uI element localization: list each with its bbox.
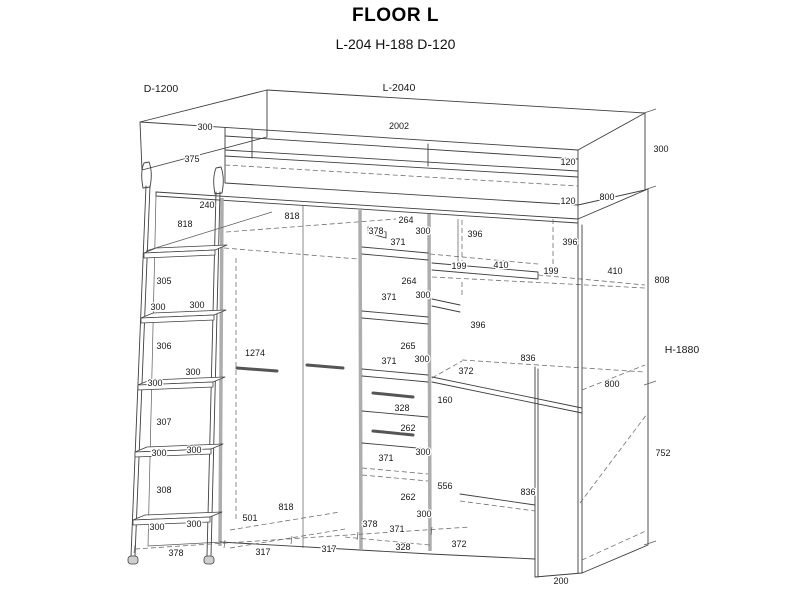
furniture-line-drawing: D-1200L-20403002002300375120800120240818… — [0, 0, 791, 593]
dimension-label: 264 — [401, 276, 416, 286]
dimension-label: 328 — [395, 542, 410, 552]
dimension-label: 2002 — [389, 121, 409, 131]
dimension-label: 300 — [151, 448, 166, 458]
dimension-label: 410 — [607, 266, 622, 276]
dimension-label: 300 — [197, 122, 212, 132]
dimension-label: 371 — [381, 292, 396, 302]
dimension-label: 371 — [378, 453, 393, 463]
dimension-label: 300 — [189, 300, 204, 310]
dimension-label: 199 — [451, 261, 466, 271]
dimension-label: 300 — [185, 367, 200, 377]
dimension-label: 371 — [389, 524, 404, 534]
dimension-label: 372 — [451, 539, 466, 549]
dimension-label: D-1200 — [144, 83, 179, 95]
dimension-label: 378 — [368, 226, 383, 236]
dimension-label: 300 — [147, 378, 162, 388]
dimension-label: 300 — [415, 447, 430, 457]
dimension-label: 396 — [562, 237, 577, 247]
dimension-label: 1274 — [245, 348, 265, 358]
dimension-label: 300 — [186, 519, 201, 529]
dimension-label: 752 — [655, 448, 670, 458]
dimension-label: 300 — [415, 290, 430, 300]
dimension-label: 300 — [150, 302, 165, 312]
dimension-label: 501 — [242, 513, 257, 523]
dimension-label: 375 — [184, 154, 199, 164]
dimension-label: 818 — [177, 219, 192, 229]
dimension-label: 262 — [400, 492, 415, 502]
dimension-label: 200 — [553, 576, 568, 586]
dimension-label: 556 — [437, 481, 452, 491]
technical-drawing-page: FLOOR L L-204 H-188 D-120 — [0, 0, 791, 593]
dimension-label: 372 — [458, 366, 473, 376]
dimension-label: 306 — [156, 341, 171, 351]
dimension-label: 300 — [416, 509, 431, 519]
dimension-label: 328 — [394, 403, 409, 413]
dimension-label: 262 — [400, 423, 415, 433]
dimension-label: 396 — [467, 229, 482, 239]
dimension-label: 300 — [149, 522, 164, 532]
dimension-label: 800 — [599, 192, 614, 202]
dimension-label: 818 — [284, 211, 299, 221]
dimension-label: 371 — [390, 237, 405, 247]
dimension-label: 300 — [186, 445, 201, 455]
dimension-label: 300 — [414, 354, 429, 364]
dimension-label: 378 — [168, 548, 183, 558]
dimension-label: H-1880 — [665, 344, 700, 356]
dimension-label: 305 — [156, 276, 171, 286]
dimension-label: 818 — [278, 502, 293, 512]
dimension-label: 317 — [321, 544, 336, 554]
dimension-label: 836 — [520, 353, 535, 363]
dimension-label: 836 — [520, 487, 535, 497]
dimension-label: 300 — [415, 226, 430, 236]
dimension-label: 808 — [654, 275, 669, 285]
dimension-label: 120 — [560, 157, 575, 167]
dimension-label: 240 — [199, 200, 214, 210]
dimension-label: L-2040 — [383, 82, 416, 94]
dimension-label: 317 — [255, 547, 270, 557]
bed-box-lines — [140, 90, 645, 205]
dimension-label: 307 — [156, 417, 171, 427]
dimension-label: 410 — [493, 260, 508, 270]
dimension-label: 264 — [398, 215, 413, 225]
dimension-label: 308 — [156, 485, 171, 495]
dimension-label: 371 — [381, 356, 396, 366]
dimension-label: 265 — [400, 341, 415, 351]
shelf-column-lines — [345, 227, 430, 545]
dimension-label: 300 — [653, 144, 668, 154]
right-cabinet-lines — [460, 109, 656, 577]
dimension-label: 800 — [604, 379, 619, 389]
dimension-labels: D-1200L-20403002002300375120800120240818… — [144, 82, 700, 586]
dimension-label: 378 — [362, 519, 377, 529]
carcass-panels — [220, 198, 430, 551]
dimension-label: 396 — [470, 320, 485, 330]
dimension-label: 160 — [437, 395, 452, 405]
dimension-label: 199 — [543, 266, 558, 276]
dimension-label: 120 — [560, 196, 575, 206]
